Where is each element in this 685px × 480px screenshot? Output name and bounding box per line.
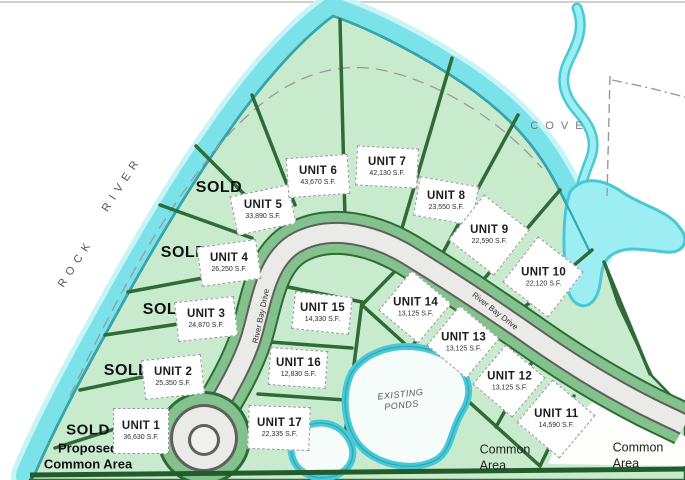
- unit-box-15: UNIT 1514,330 S.F.: [291, 291, 353, 335]
- common-area-label-center: Common Area: [480, 442, 531, 473]
- unit-area: 24,870 S.F.: [187, 322, 225, 330]
- unit-area: 26,250 S.F.: [210, 266, 248, 274]
- unit-name: UNIT 4: [210, 252, 248, 265]
- cove-label: COVE: [530, 120, 589, 132]
- unit-area: 33,890 S.F.: [244, 213, 282, 221]
- unit-area: 22,335 S.F.: [257, 431, 302, 439]
- unit-area: 43,670 S.F.: [299, 179, 337, 187]
- unit-area: 23,550 S.F.: [427, 204, 465, 212]
- unit-area: 13,125 S.F.: [487, 384, 532, 392]
- unit-area: 13,125 S.F.: [393, 310, 438, 318]
- unit-name: UNIT 3: [187, 308, 225, 321]
- unit-name: UNIT 7: [368, 156, 406, 169]
- unit-name: UNIT 5: [244, 199, 282, 212]
- unit-box-4: UNIT 426,250 S.F.: [197, 239, 262, 287]
- unit-name: UNIT 15: [300, 302, 345, 315]
- unit-box-16: UNIT 1612,830 S.F.: [268, 347, 329, 389]
- unit-name: UNIT 12: [487, 370, 532, 383]
- unit-name: UNIT 10: [521, 266, 566, 279]
- unit-area: 36,630 S.F.: [122, 434, 160, 442]
- unit-area: 22,590 S.F.: [470, 238, 508, 246]
- unit-box-6: UNIT 643,670 S.F.: [286, 154, 351, 198]
- culdesac-island: [191, 427, 217, 453]
- unit-name: UNIT 16: [276, 357, 321, 370]
- unit-name: UNIT 8: [427, 190, 465, 203]
- unit-name: UNIT 14: [393, 296, 438, 309]
- unit-box-2: UNIT 225,350 S.F.: [141, 354, 205, 400]
- plat-map: ROCK RIVER COVE River Bay Drive River Ba…: [0, 0, 685, 480]
- common-area-label-right: Common Area: [613, 440, 664, 471]
- unit-box-17: UNIT 1722,335 S.F.: [247, 405, 310, 451]
- unit-area: 13,125 S.F.: [441, 345, 486, 353]
- unit-area: 25,350 S.F.: [154, 380, 192, 388]
- unit-box-3: UNIT 324,870 S.F.: [174, 296, 238, 342]
- unit-name: UNIT 6: [299, 165, 337, 178]
- unit-name: UNIT 17: [257, 417, 302, 430]
- unit-name: UNIT 9: [470, 224, 508, 237]
- unit-area: 12,830 S.F.: [276, 371, 321, 379]
- unit-name: UNIT 1: [122, 420, 160, 433]
- unit-area: 42,130 S.F.: [368, 170, 406, 178]
- unit-area: 14,330 S.F.: [300, 316, 345, 324]
- unit-box-1: UNIT 136,630 S.F.: [113, 408, 169, 454]
- unit-area: 14,590 S.F.: [534, 422, 578, 430]
- unit-name: UNIT 2: [154, 366, 192, 379]
- unit-name: UNIT 13: [441, 331, 486, 344]
- unit-box-7: UNIT 742,130 S.F.: [355, 145, 419, 188]
- unit-area: 22,120 S.F.: [521, 280, 566, 288]
- unit-name: UNIT 11: [534, 408, 578, 421]
